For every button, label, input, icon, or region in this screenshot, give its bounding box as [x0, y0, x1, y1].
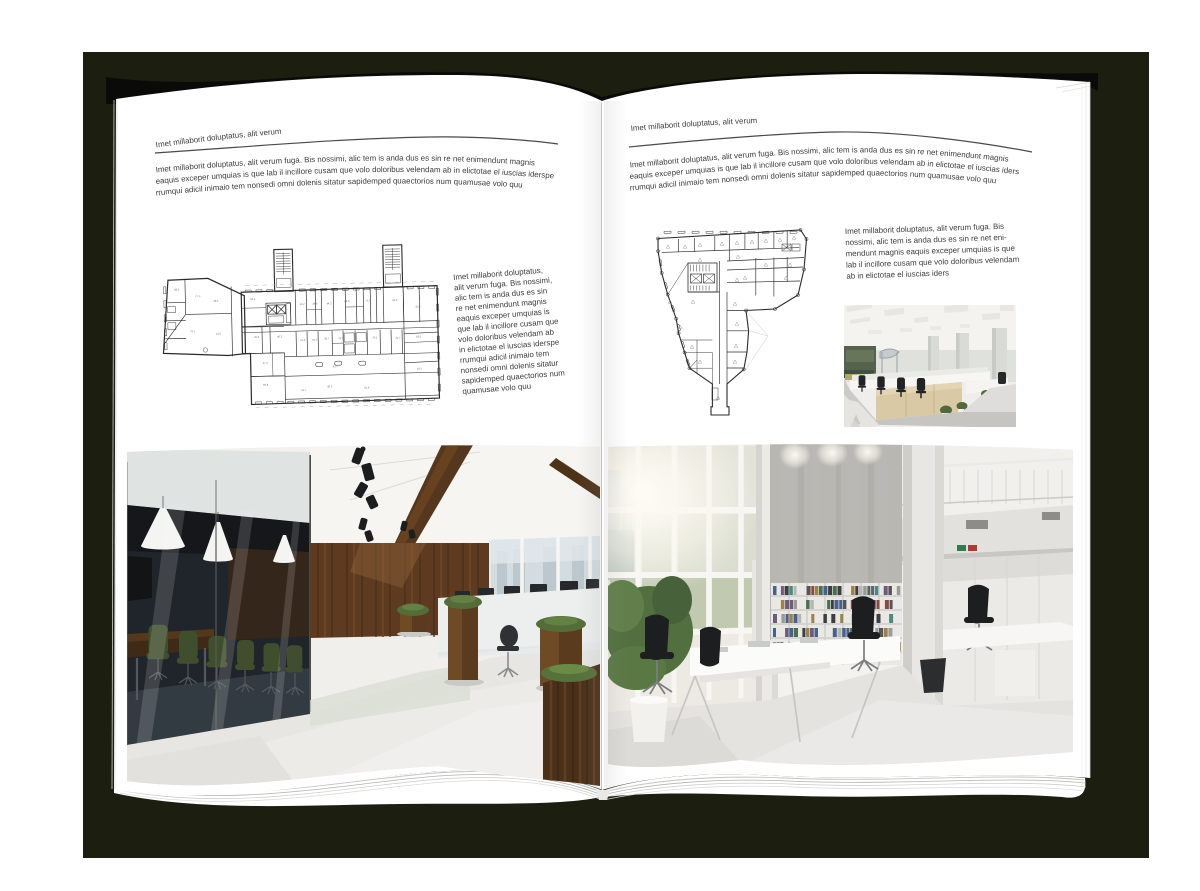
svg-text:44.2: 44.2: [326, 301, 332, 305]
svg-text:62.7: 62.7: [333, 364, 339, 368]
svg-text:88.0: 88.0: [344, 299, 350, 303]
svg-text:69.8: 69.8: [263, 383, 269, 387]
svg-text:55.5: 55.5: [312, 338, 318, 342]
svg-text:61.6: 61.6: [364, 386, 370, 390]
svg-text:74.1: 74.1: [372, 335, 378, 339]
svg-text:26.6: 26.6: [312, 302, 318, 306]
svg-text:21.7: 21.7: [301, 388, 307, 392]
svg-text:46.2: 46.2: [277, 334, 283, 338]
svg-text:62.0: 62.0: [416, 334, 422, 338]
svg-text:45.6: 45.6: [254, 335, 260, 339]
svg-text:32.6: 32.6: [415, 304, 421, 308]
svg-text:75.3: 75.3: [365, 299, 371, 303]
svg-text:47.4: 47.4: [263, 361, 269, 365]
svg-text:15.0: 15.0: [216, 332, 222, 336]
svg-text:51.2: 51.2: [300, 338, 306, 342]
svg-text:58.7: 58.7: [324, 336, 330, 340]
svg-text:14.5: 14.5: [417, 366, 423, 370]
svg-text:40.3: 40.3: [327, 384, 333, 388]
svg-text:24.3: 24.3: [392, 298, 398, 302]
svg-text:15.2: 15.2: [299, 302, 305, 306]
svg-text:76.7: 76.7: [395, 336, 401, 340]
svg-text:66.1: 66.1: [250, 297, 256, 301]
svg-text:70.7: 70.7: [190, 329, 196, 333]
svg-text:76.3: 76.3: [338, 336, 344, 340]
svg-text:77.5: 77.5: [195, 294, 201, 298]
svg-text:48.1: 48.1: [213, 299, 219, 303]
svg-text:83.4: 83.4: [174, 288, 180, 292]
